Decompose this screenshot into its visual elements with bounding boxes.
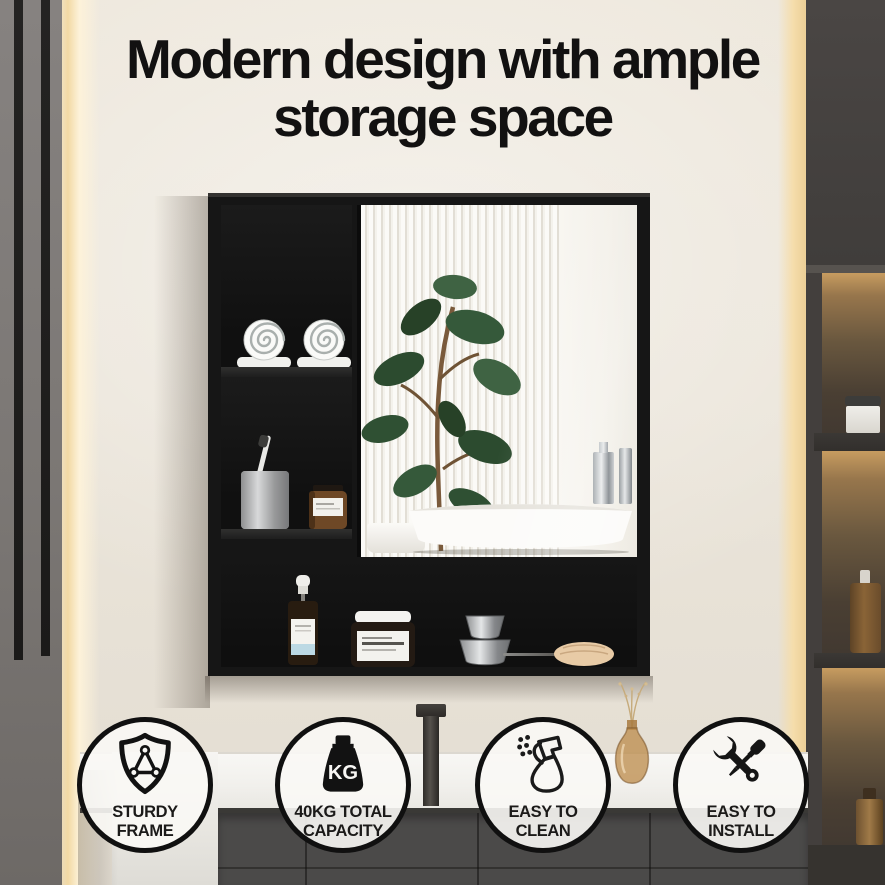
cabinet-shelf: [221, 529, 352, 539]
open-shelf-bottom: [221, 557, 637, 667]
metal-bowls: [458, 614, 512, 667]
headline-line-1: Modern design with ample: [0, 30, 885, 88]
badge-label-line-1: 40KG TOTAL: [282, 802, 404, 821]
bottle-body: [850, 583, 881, 653]
open-shelf-middle: [221, 377, 352, 529]
kg-weight-icon: KG: [280, 730, 406, 802]
badge-label-line-2: FRAME: [84, 821, 206, 840]
decor-jar: [845, 396, 881, 433]
jar-body: [846, 406, 880, 433]
kg-text: KG: [328, 762, 358, 784]
perfume-body: [856, 799, 883, 845]
cabinet-shelf: [221, 367, 352, 377]
badge-label-line-1: STURDY: [84, 802, 206, 821]
headline-line-2: storage space: [0, 88, 885, 146]
badge-label-line-2: CLEAN: [482, 821, 604, 840]
badge-label-line-1: EASY TO: [482, 802, 604, 821]
mirror-door: [357, 205, 637, 557]
badge-label-line-2: INSTALL: [680, 821, 802, 840]
shelf-divider: [814, 653, 885, 668]
towel-roll: [297, 320, 351, 368]
basin-tap: [416, 704, 446, 804]
feature-badge-easy-clean: EASY TO CLEAN: [475, 717, 611, 853]
headline: Modern design with ample storage space: [0, 30, 885, 146]
cabinet-shadow: [205, 676, 653, 706]
mirror-cabinet: [208, 193, 650, 676]
cream-jar: [348, 611, 418, 667]
amber-cosmetic-jar: [305, 485, 351, 529]
towel-roll: [237, 320, 291, 368]
cabinet-shadow: [138, 196, 210, 708]
badge-label-line-1: EASY TO: [680, 802, 802, 821]
wrench-screwdriver-icon: [678, 730, 804, 802]
open-shelf-top: [221, 205, 352, 367]
shelf-unit-base: [806, 845, 885, 885]
decor-perfume-bottle: [856, 788, 883, 845]
spray-bottle-icon: [480, 730, 606, 802]
product-marketing-image: Modern design with ample storage space: [0, 0, 885, 885]
feature-badge-capacity: KG 40KG TOTAL CAPACITY: [275, 717, 411, 853]
mirror-sheen: [361, 205, 637, 557]
shelf-unit-frame: [806, 265, 885, 273]
glass-vase-with-dried-flowers: [606, 678, 658, 794]
tap-body: [423, 716, 439, 806]
dropper-bottle: [287, 575, 319, 667]
soap-bar: [553, 641, 615, 667]
feature-badge-sturdy-frame: STURDY FRAME: [77, 717, 213, 853]
drawer-seam: [477, 813, 479, 885]
rolled-towels: [235, 313, 353, 369]
bottle-pump: [860, 570, 870, 584]
badge-label-line-2: CAPACITY: [282, 821, 404, 840]
feature-badge-easy-install: EASY TO INSTALL: [673, 717, 809, 853]
drawer-seam: [218, 867, 808, 869]
shield-frame-icon: [82, 730, 208, 802]
drawer-seam: [649, 813, 651, 885]
decor-pump-bottle: [850, 570, 881, 653]
shelf-divider: [814, 433, 885, 451]
jar-lid: [845, 396, 881, 406]
toothbrush-cup: [239, 435, 291, 529]
